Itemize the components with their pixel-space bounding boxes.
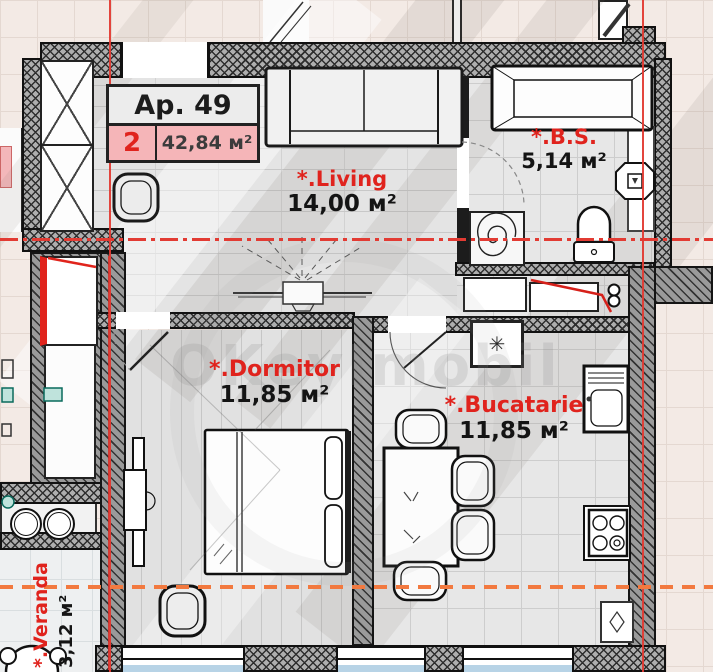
total-area: 42,84 м² <box>157 126 257 160</box>
duct-shaft <box>44 333 96 479</box>
entrance-door <box>40 256 98 346</box>
rooms-count: 2 <box>109 126 157 160</box>
vent-shaft: ✳ <box>470 320 524 368</box>
neighbor-wall-top <box>452 0 462 44</box>
title-block: Ap. 49 2 42,84 м² <box>106 84 260 163</box>
wall-east-lower <box>628 266 656 672</box>
bathroom-cabinet <box>627 126 655 232</box>
wardrobe-cell <box>40 144 94 232</box>
wardrobe <box>40 60 94 232</box>
wall-east-upper <box>654 58 672 268</box>
wall-west-upper <box>22 58 42 232</box>
wall-south <box>243 645 338 672</box>
vent-icon: ✳ <box>489 332 506 356</box>
floor-bedroom <box>122 330 354 645</box>
neighbor-door-top <box>270 2 629 42</box>
wall-top-stub <box>622 26 656 44</box>
floor-kitchen <box>374 330 630 645</box>
neighbor-label-strip <box>0 146 12 188</box>
kitchen-door-gap <box>388 316 446 333</box>
neighbor-door-gap-top <box>263 0 309 44</box>
window-glass <box>338 665 424 672</box>
apartment-number: Ap. 49 <box>106 84 260 126</box>
wall-bathroom-south <box>455 262 655 276</box>
floor-veranda <box>0 548 100 672</box>
wall-north-opening <box>120 42 210 78</box>
wall-south <box>572 645 666 672</box>
wall-west-lower <box>0 482 102 504</box>
bedroom-door-gap <box>116 312 170 329</box>
wardrobe-cell <box>40 60 94 148</box>
window-glass <box>123 665 243 672</box>
wall-south <box>424 645 464 672</box>
floorplan: ✳ <box>0 0 713 672</box>
wall-veranda-north <box>0 532 102 550</box>
wall-red-accent <box>108 256 111 670</box>
wall-bedroom-kitchen <box>352 316 374 646</box>
bathroom-door-gap <box>457 138 469 208</box>
window-glass <box>464 665 572 672</box>
hallway-cabinet <box>529 282 599 312</box>
hallway-cabinet <box>463 277 527 312</box>
title-block-row: 2 42,84 м² <box>106 126 260 163</box>
